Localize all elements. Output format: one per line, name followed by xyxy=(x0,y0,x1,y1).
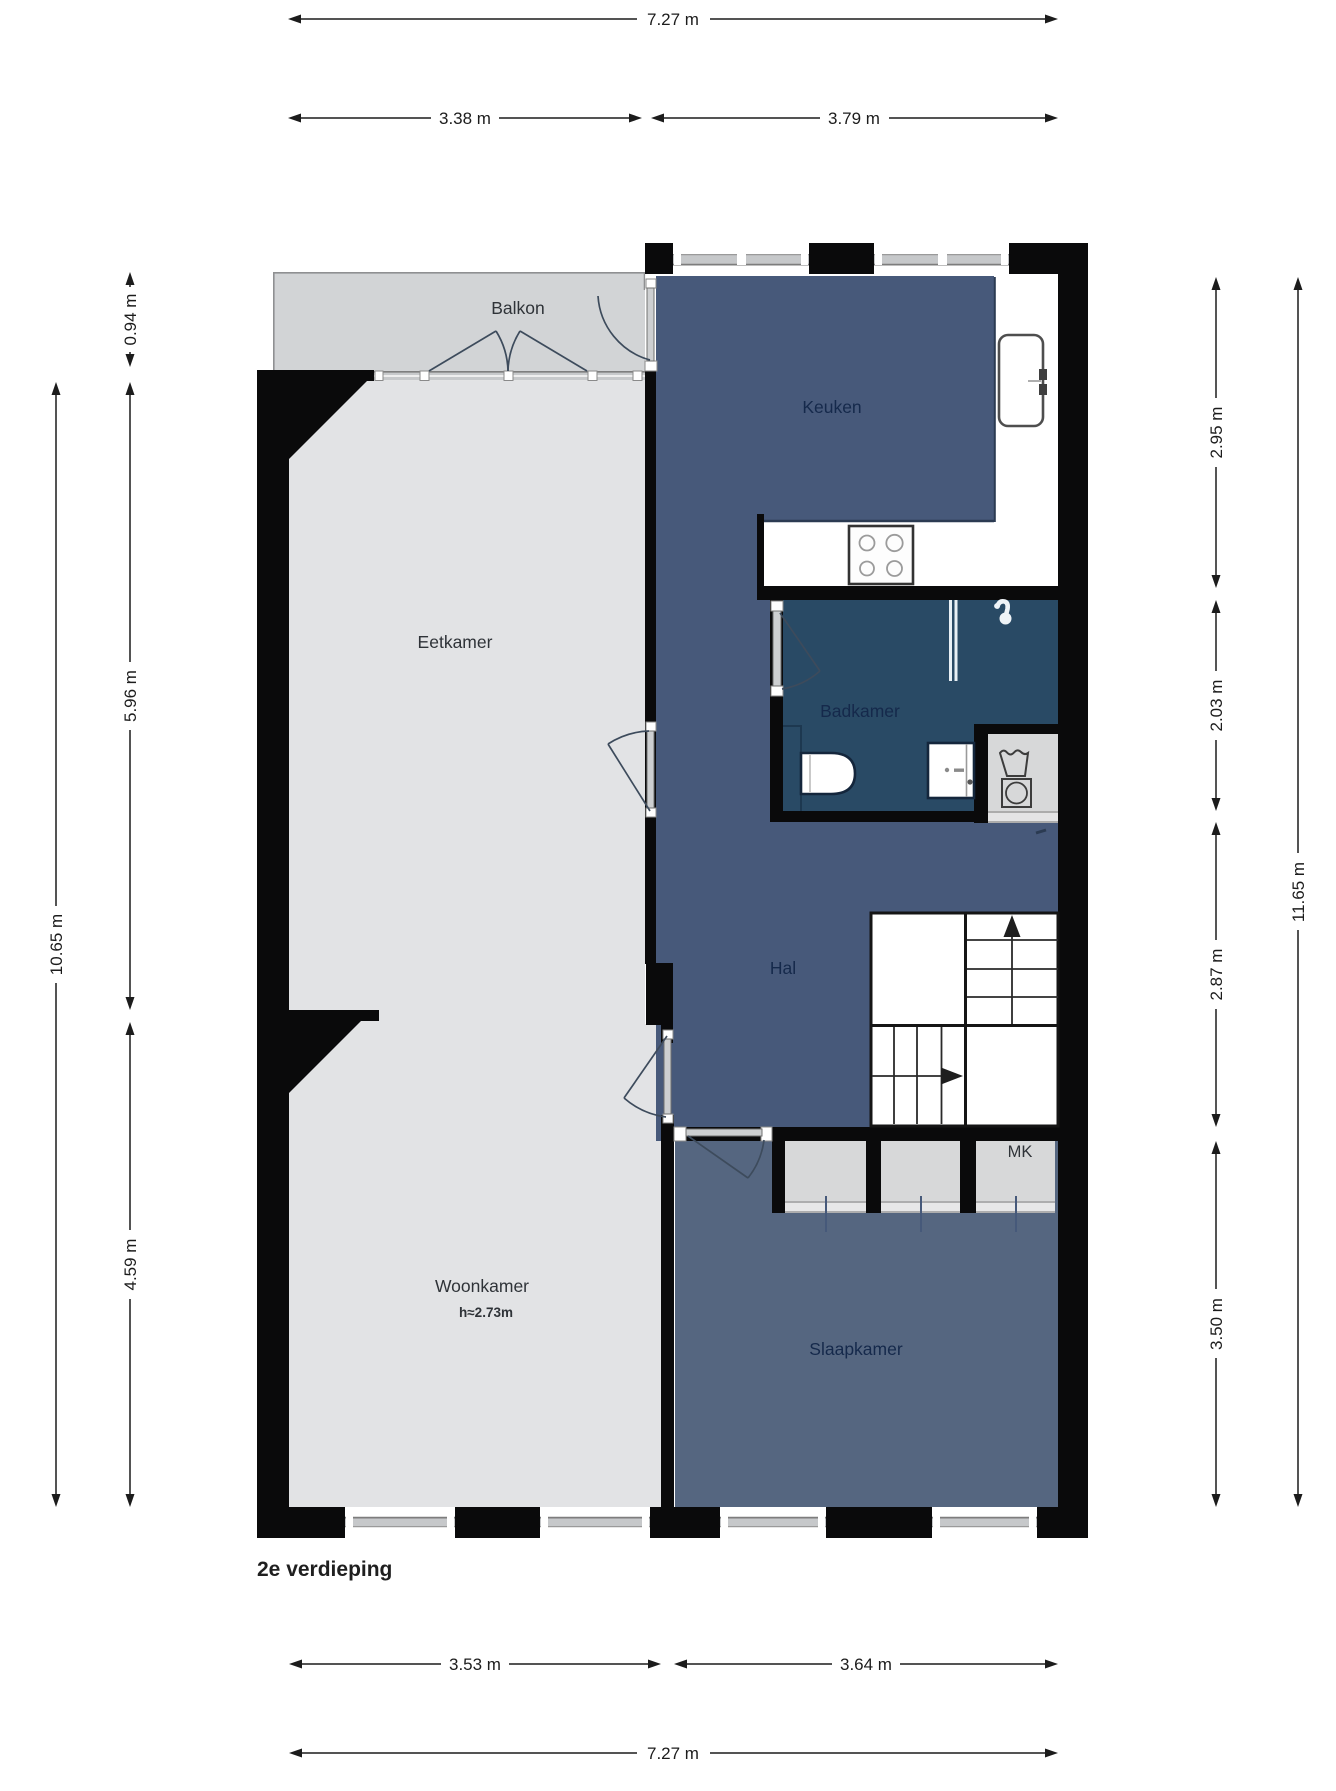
svg-text:7.27 m: 7.27 m xyxy=(647,10,699,29)
svg-text:7.27 m: 7.27 m xyxy=(647,1744,699,1763)
svg-text:h≈2.73m: h≈2.73m xyxy=(459,1305,513,1320)
svg-text:10.65 m: 10.65 m xyxy=(47,914,66,975)
svg-text:Slaapkamer: Slaapkamer xyxy=(809,1339,903,1359)
svg-text:2.95 m: 2.95 m xyxy=(1207,407,1226,459)
svg-text:2e verdieping: 2e verdieping xyxy=(257,1558,392,1581)
svg-text:Eetkamer: Eetkamer xyxy=(418,632,493,652)
svg-text:3.50 m: 3.50 m xyxy=(1207,1298,1226,1350)
svg-text:11.65 m: 11.65 m xyxy=(1289,862,1308,922)
svg-text:3.64 m: 3.64 m xyxy=(840,1655,892,1674)
svg-text:Badkamer: Badkamer xyxy=(820,701,900,721)
svg-text:2.03 m: 2.03 m xyxy=(1207,680,1226,732)
svg-text:Hal: Hal xyxy=(770,958,796,978)
svg-text:2.87 m: 2.87 m xyxy=(1207,949,1226,1001)
svg-text:MK: MK xyxy=(1008,1143,1033,1161)
svg-text:Keuken: Keuken xyxy=(802,397,861,417)
svg-text:0.94 m: 0.94 m xyxy=(121,294,140,346)
svg-text:3.38 m: 3.38 m xyxy=(439,109,491,128)
svg-text:4.59 m: 4.59 m xyxy=(121,1239,140,1291)
svg-text:Woonkamer: Woonkamer xyxy=(435,1276,529,1296)
svg-text:Balkon: Balkon xyxy=(491,298,545,318)
svg-text:3.79 m: 3.79 m xyxy=(828,109,880,128)
svg-text:5.96 m: 5.96 m xyxy=(121,670,140,722)
svg-text:3.53 m: 3.53 m xyxy=(449,1655,501,1674)
